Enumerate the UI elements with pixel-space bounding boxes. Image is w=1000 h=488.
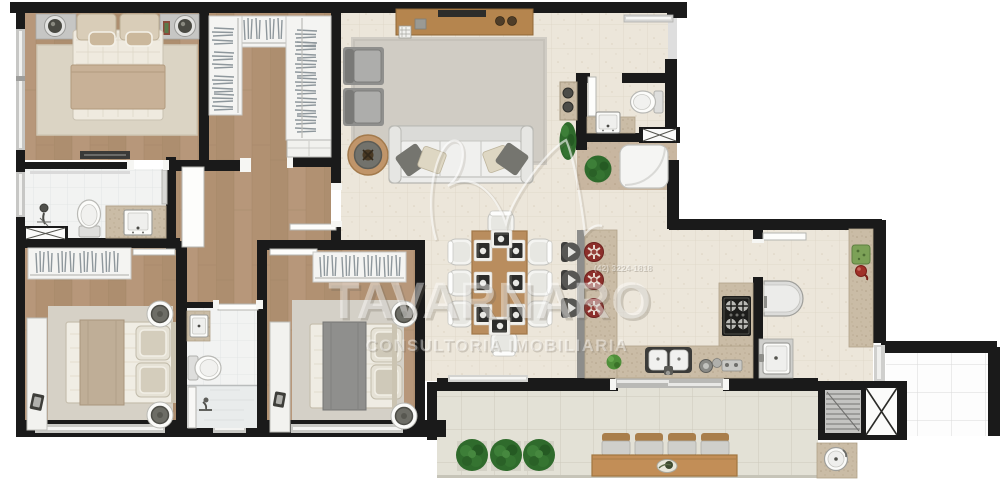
svg-text:TAVARNARO: TAVARNARO [328, 272, 651, 329]
svg-text:CONSULTORIA IMOBILIARIA: CONSULTORIA IMOBILIARIA [366, 337, 629, 355]
svg-text:(42) 3224-1818: (42) 3224-1818 [594, 263, 652, 273]
